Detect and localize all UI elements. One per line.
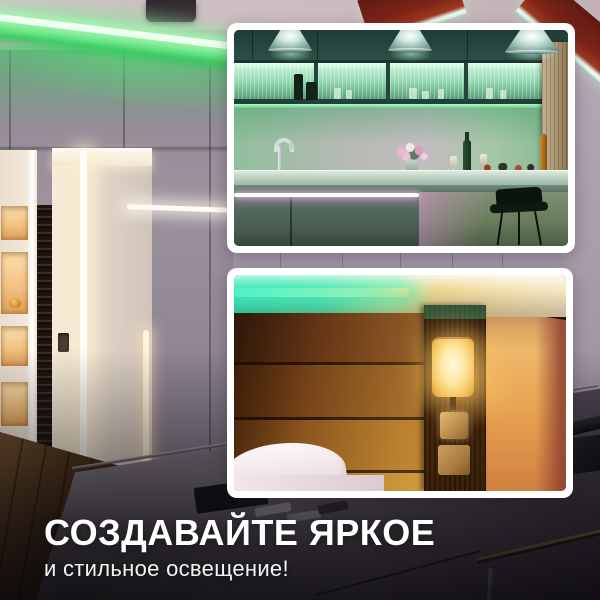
faucet-stem bbox=[278, 146, 282, 172]
wine-bottle bbox=[463, 140, 471, 172]
bedroom-photo bbox=[234, 275, 566, 491]
inset-photo-kitchen bbox=[227, 23, 575, 253]
caption-subtitle: и стильное освещение! bbox=[44, 556, 435, 582]
wall-lamp-shade bbox=[432, 337, 474, 397]
glassware bbox=[409, 88, 417, 99]
cabinet-divider bbox=[464, 63, 468, 101]
inset-photo-bedroom bbox=[227, 268, 573, 498]
shelf-niche bbox=[1, 326, 28, 366]
caption-title: СОЗДАВАЙТЕ ЯРКОЕ bbox=[44, 514, 435, 552]
teal-led-strip bbox=[234, 288, 409, 297]
promo-banner: СОЗДАВАЙТЕ ЯРКОЕ и стильное освещение! bbox=[0, 0, 600, 600]
shelf-niche bbox=[1, 252, 28, 314]
wine-bottle bbox=[540, 134, 547, 172]
glassware bbox=[346, 90, 352, 99]
glassware bbox=[500, 90, 506, 99]
kitchen-floor-area bbox=[419, 192, 568, 246]
faucet-spout bbox=[289, 142, 293, 150]
under-counter-led-strip bbox=[234, 193, 419, 197]
shelf-niche bbox=[1, 206, 28, 240]
wall-lamp-bracket bbox=[450, 397, 456, 410]
glassware bbox=[486, 88, 493, 99]
kitchen-countertop bbox=[234, 170, 568, 185]
bed-duvet bbox=[234, 475, 384, 491]
glassware bbox=[422, 91, 429, 99]
dark-bottle bbox=[294, 74, 303, 100]
shelf-niche bbox=[1, 382, 28, 426]
door-handle bbox=[58, 333, 69, 352]
kitchen-lower-cabinets bbox=[234, 197, 419, 246]
pillar-green-spill bbox=[424, 305, 486, 319]
light-switch-plate bbox=[440, 412, 468, 439]
bar-stool-leg bbox=[518, 212, 520, 245]
glassware bbox=[334, 88, 341, 99]
pendant-lamp-rim bbox=[505, 50, 559, 54]
decor-vase bbox=[9, 298, 21, 308]
caption: СОЗДАВАЙТЕ ЯРКОЕ и стильное освещение! bbox=[44, 514, 435, 582]
doorway-lit-soffit bbox=[52, 148, 152, 166]
pendant-lamp-rim bbox=[388, 48, 432, 52]
cabinet-divider bbox=[386, 63, 390, 101]
pendant-lamp-rim bbox=[268, 48, 312, 52]
kitchen-photo bbox=[234, 30, 568, 246]
light-switch-plate bbox=[438, 445, 470, 475]
wine-glass bbox=[450, 156, 457, 168]
glassware bbox=[438, 89, 444, 99]
dark-bottle bbox=[306, 82, 317, 100]
